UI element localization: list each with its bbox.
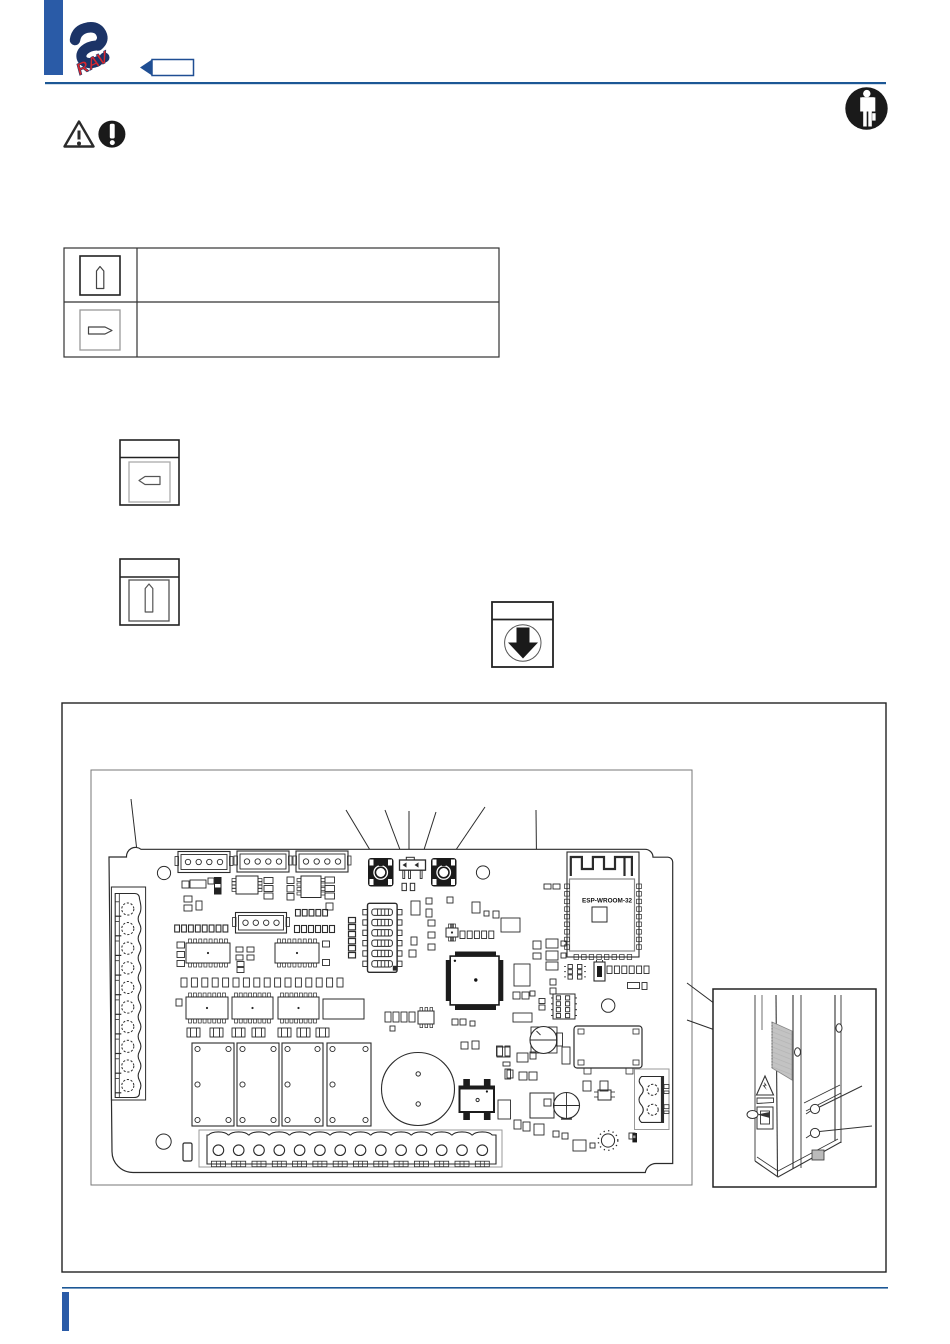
svg-text:ESP-WROOM-32: ESP-WROOM-32: [582, 898, 633, 905]
